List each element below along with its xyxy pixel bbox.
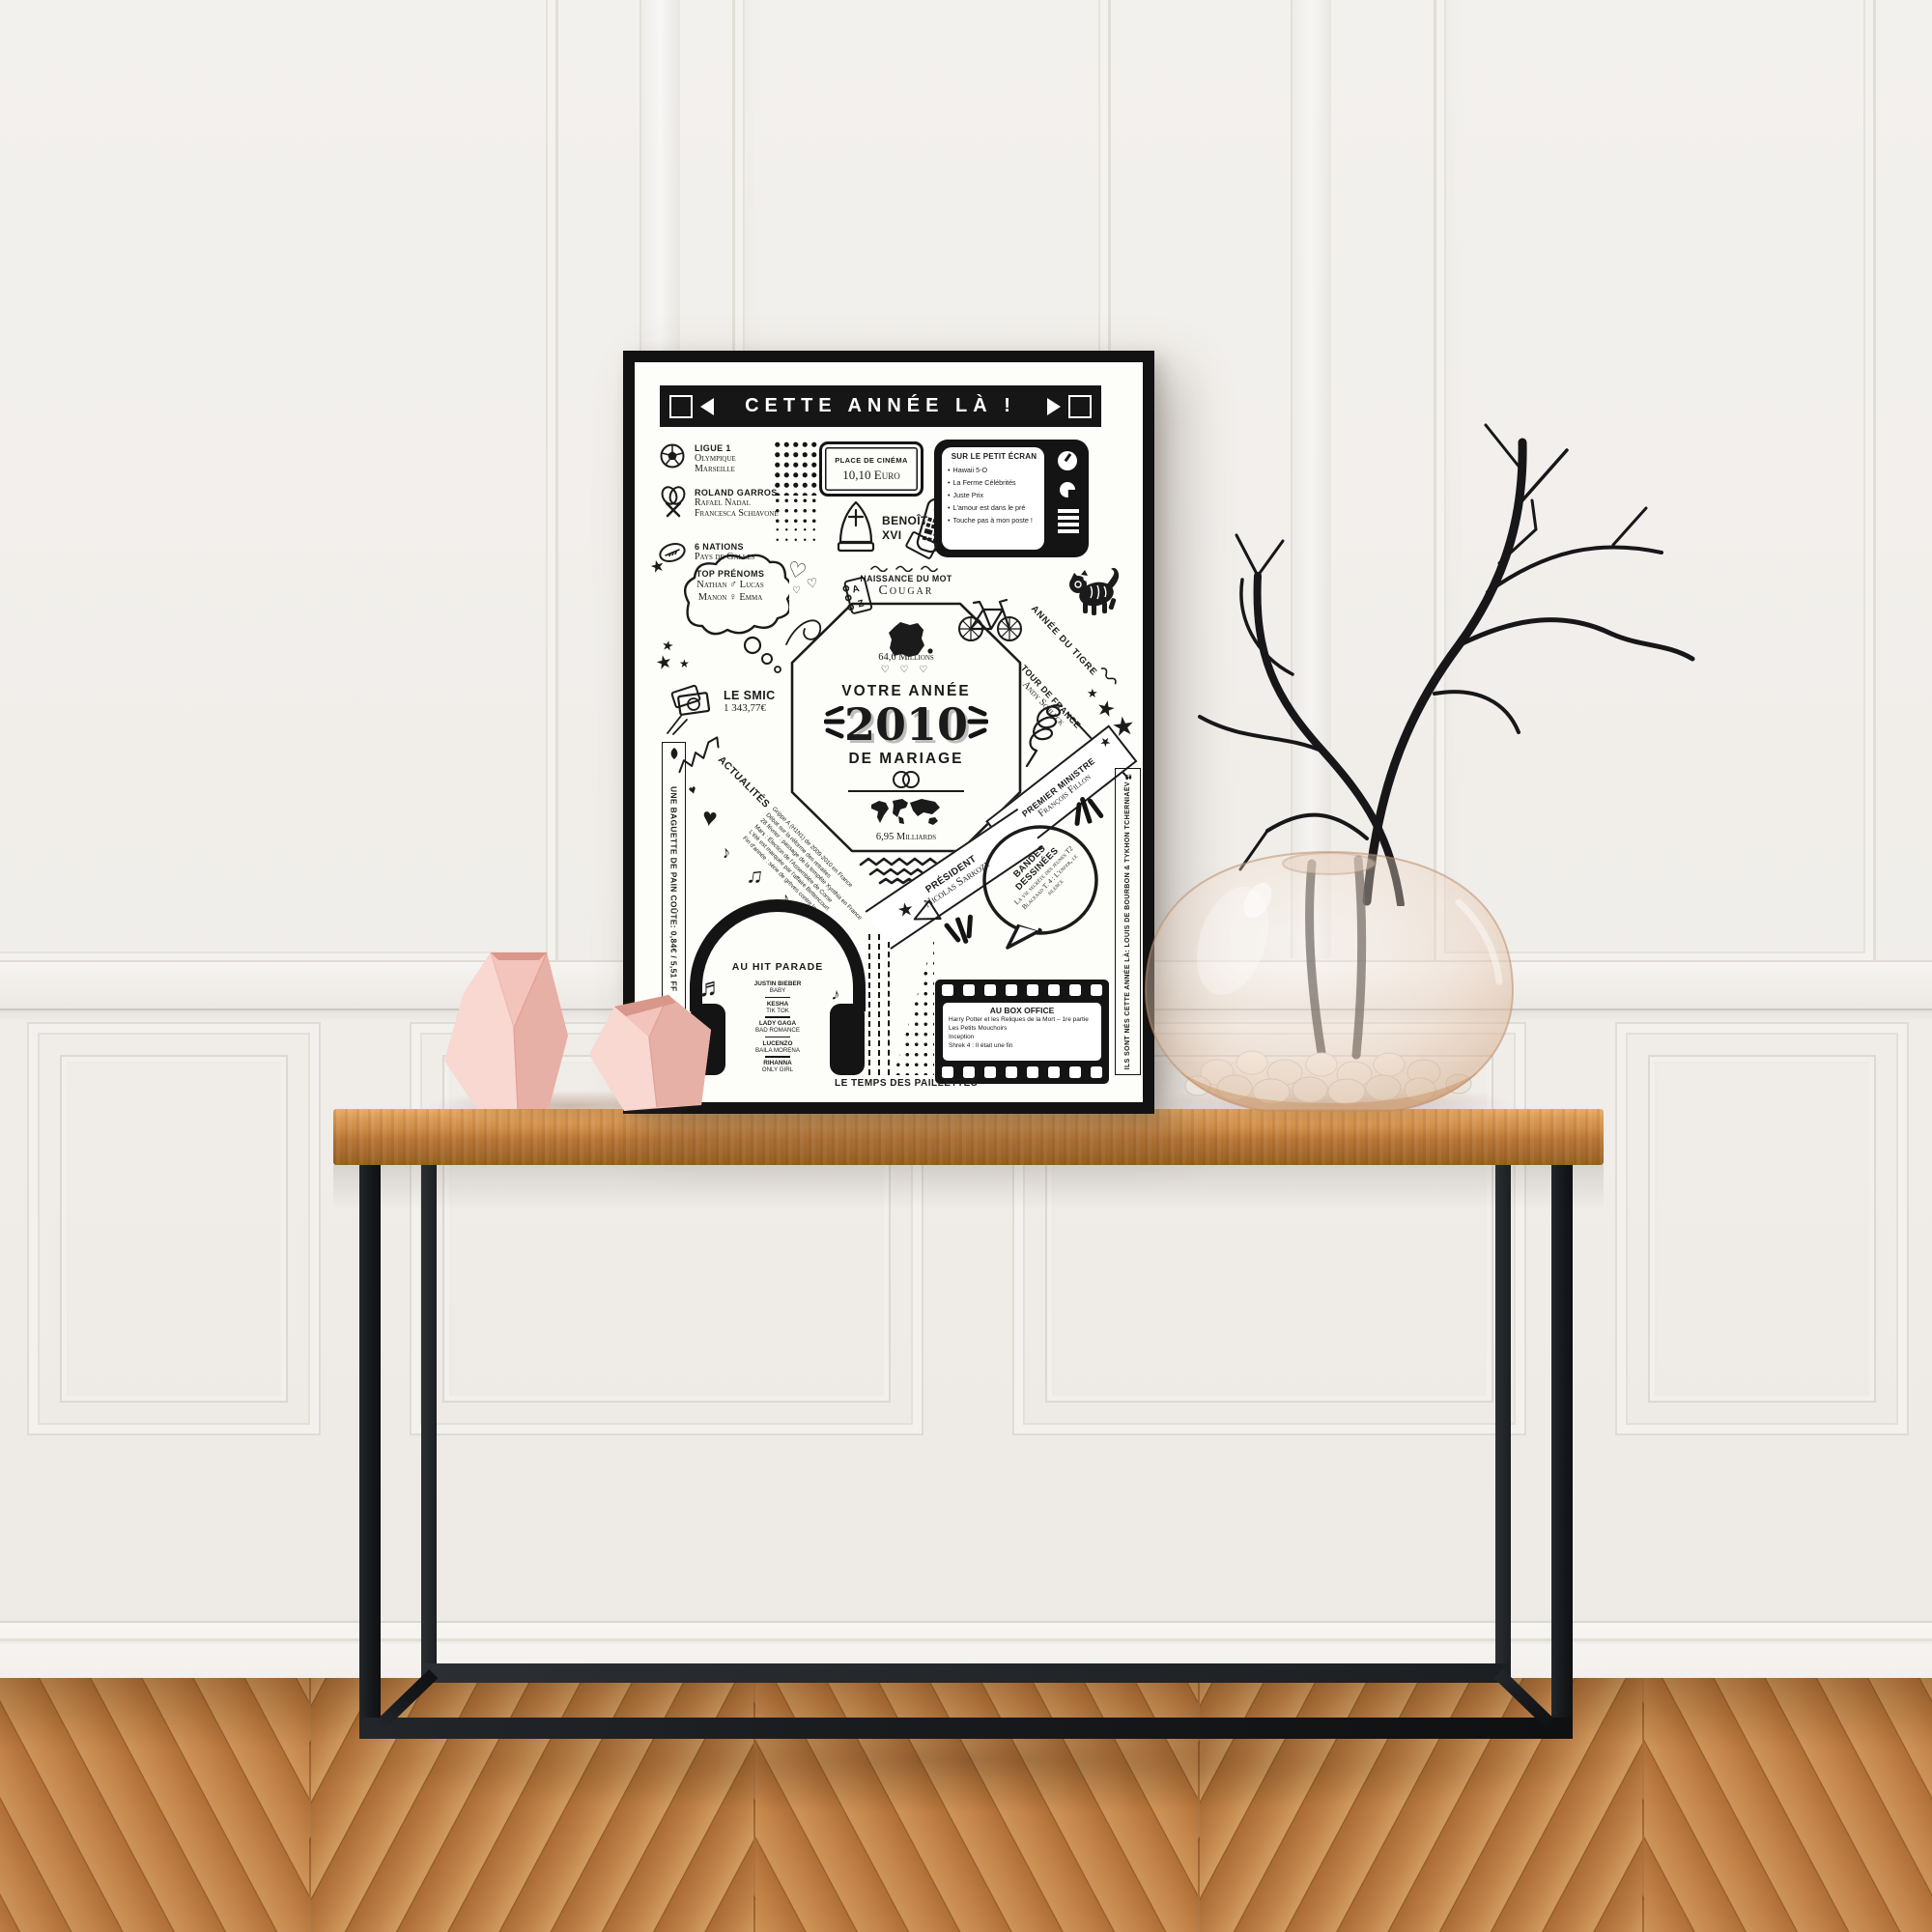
- poster-title-banner: CETTE ANNÉE LÀ !: [660, 385, 1101, 427]
- baby-footprints-icon: [1121, 774, 1136, 781]
- table-leg-front-right: [1551, 1165, 1573, 1739]
- film-arrow-right-icon: [1047, 398, 1061, 415]
- box-office-item: Les Petits Mouchoirs: [949, 1024, 1095, 1033]
- pink-geometric-vases: [425, 947, 724, 1113]
- heart-icon: ♥: [700, 804, 719, 831]
- france-population: 64,6 Millions: [848, 652, 964, 663]
- soccer-ball-icon: [660, 443, 685, 469]
- top-first-names: TOP PRÉNOMS Nathan ♂ Lucas Manon ♀ Emma: [681, 569, 780, 604]
- leaf-icon: [668, 748, 680, 759]
- star-icon: ★: [1087, 687, 1098, 699]
- center-line2: DE MARIAGE: [834, 751, 979, 768]
- star-icon: ★: [1096, 733, 1113, 750]
- star-icon: ★: [679, 658, 690, 669]
- television: SUR LE PETIT ÉCRAN Hawaii 5-O La Ferme C…: [934, 440, 1089, 557]
- glass-bowl-vase: [1140, 848, 1519, 1115]
- hit-parade-entry: JUSTIN BIEBERBABY: [729, 980, 826, 994]
- star-icon: ★: [654, 652, 674, 673]
- news-title: ACTUALITÉS: [716, 754, 772, 810]
- box-office-item: Harry Potter et les Reliques de la Mort …: [949, 1015, 1095, 1024]
- dots-triangle-pattern: [894, 938, 934, 1075]
- dots-pattern: [773, 525, 817, 544]
- divider-line: [848, 790, 964, 792]
- hit-parade-list: JUSTIN BIEBERBABY KESHATIK TOK LADY GAGA…: [729, 980, 826, 1075]
- hit-parade-entry: LADY GAGABAD ROMANCE: [729, 1020, 826, 1034]
- word-of-the-year: NAISSANCE DU MOT Cougar: [855, 574, 957, 599]
- tiger-icon: [1065, 561, 1125, 621]
- dashed-line: [878, 934, 880, 1075]
- wall-panel: [0, 0, 558, 964]
- table-leg-front-left: [359, 1165, 381, 1739]
- wainscot-panel: [27, 1022, 321, 1435]
- tv-show: Touche pas à mon poste !: [948, 514, 1040, 526]
- table-stretcher-back: [421, 1663, 1511, 1683]
- tv-show: Juste Prix: [948, 489, 1040, 501]
- heart-outline-icon: ♡: [806, 576, 819, 590]
- film-frame-icon: [669, 395, 693, 418]
- tennis-rackets-icon: [658, 486, 689, 519]
- hit-parade-entry: RIHANNAONLY GIRL: [729, 1060, 826, 1073]
- music-note-icon: ♫: [745, 864, 764, 888]
- tv-show-list: Hawaii 5-O La Ferme Célébrités Juste Pri…: [948, 464, 1040, 526]
- film-frame-icon: [1068, 395, 1092, 418]
- tv-title: SUR LE PETIT ÉCRAN: [948, 452, 1040, 461]
- tv-knob-icon: [1058, 451, 1077, 470]
- box-office-title: AU BOX OFFICE: [949, 1006, 1095, 1015]
- wainscot-panel: [1615, 1022, 1909, 1435]
- wedding-rings-icon: [888, 770, 924, 789]
- poster-title: CETTE ANNÉE LÀ !: [714, 395, 1047, 417]
- burst-doodle: [942, 912, 982, 951]
- music-note-icon: ♪: [721, 842, 732, 861]
- headphone-cup-icon: [830, 1004, 865, 1075]
- tv-show: La Ferme Célébrités: [948, 476, 1040, 489]
- dots-pattern: [773, 440, 817, 496]
- hit-parade-entry: KESHATIK TOK: [729, 1001, 826, 1014]
- hearts-row: ♡ ♡ ♡: [848, 665, 964, 675]
- tv-show: L'amour est dans le pré: [948, 501, 1040, 514]
- money-hand-icon: [664, 683, 718, 735]
- dots-pattern: [773, 496, 817, 525]
- table-leg-back-right: [1495, 1165, 1511, 1683]
- heart-outline-icon: ♡: [792, 586, 801, 596]
- tv-screen: SUR LE PETIT ÉCRAN Hawaii 5-O La Ferme C…: [942, 447, 1044, 550]
- smic: LE SMIC 1 343,77€: [724, 689, 776, 714]
- box-office-item: Shrek 4 : Il était une fin: [949, 1041, 1095, 1050]
- wavy-lines-doodle: [869, 564, 945, 572]
- room-scene: CETTE ANNÉE LÀ ! LIGUE 1 Olympique Marse…: [0, 0, 1932, 1932]
- dashed-line: [868, 934, 870, 1075]
- table-leg-back-left: [421, 1165, 437, 1683]
- burst-doodle: [967, 706, 988, 739]
- pope-mitre-icon: [834, 500, 878, 554]
- dashed-line: [888, 942, 890, 1075]
- box-office-item: Inception: [949, 1033, 1095, 1041]
- table-stretcher-front: [359, 1718, 1573, 1739]
- prenoms-title: TOP PRÉNOMS: [681, 569, 780, 579]
- births-band: ILS SONT NÉS CETTE ANNÉE LÀ: LOUIS DE BO…: [1115, 768, 1141, 1075]
- branches: [1159, 384, 1719, 906]
- world-population: 6,95 Milliards: [848, 832, 964, 842]
- star-icon: ★: [661, 638, 675, 653]
- tv-show: Hawaii 5-O: [948, 464, 1040, 476]
- cinema-ticket: PLACE DE CINÉMA 10,10 Euro: [819, 441, 923, 497]
- hit-parade-entry: LUCENZOBAILA MORENA: [729, 1040, 826, 1054]
- hit-parade-title: AU HIT PARADE: [715, 961, 840, 973]
- box-office-panel: AU BOX OFFICE Harry Potter et les Reliqu…: [943, 1003, 1101, 1061]
- center-year: 2010: [824, 698, 988, 751]
- burst-doodle: [824, 706, 845, 739]
- poster-footer: LE TEMPS DES PAILLETTES: [834, 1078, 979, 1089]
- film-arrow-left-icon: [700, 398, 714, 415]
- film-strip: AU BOX OFFICE Harry Potter et les Reliqu…: [935, 980, 1109, 1084]
- world-map-icon: [869, 797, 943, 828]
- tv-knob-icon: [1060, 482, 1075, 497]
